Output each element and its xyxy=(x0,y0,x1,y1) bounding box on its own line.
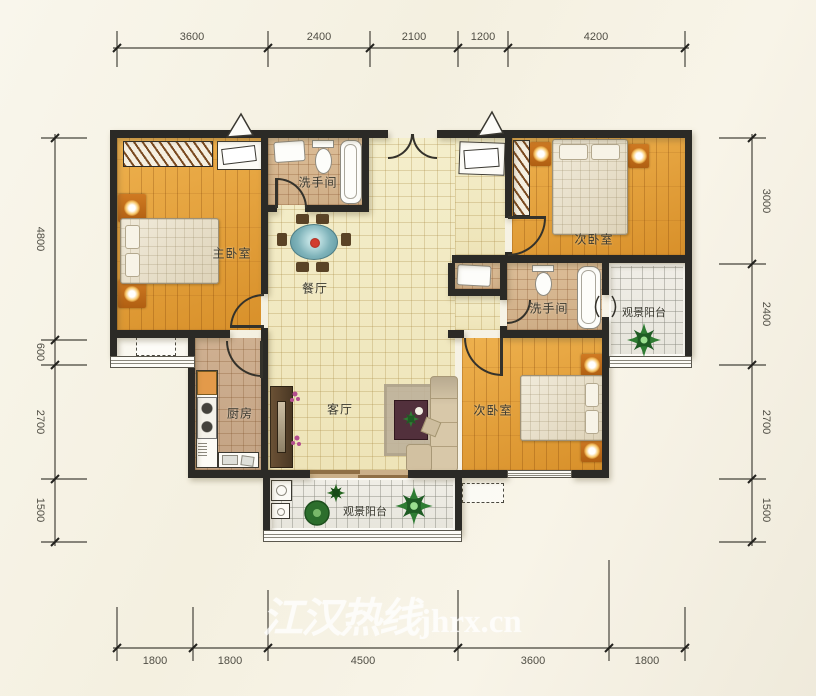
toilet-tank-icon xyxy=(532,265,554,272)
balcony-railing xyxy=(609,356,692,368)
dining-table xyxy=(290,224,338,260)
table-dish-icon xyxy=(415,407,423,415)
sink-icon xyxy=(273,140,305,163)
dim-top: 1200 xyxy=(471,31,495,43)
nightstand xyxy=(530,142,551,166)
toilet-bowl-icon xyxy=(535,272,552,296)
cabinet-top xyxy=(463,148,499,169)
bathtub-icon xyxy=(340,140,362,204)
dining-label: 餐厅 xyxy=(302,280,328,297)
watermark-en: jhrx.cn xyxy=(420,604,522,641)
kitchen-sink-basin xyxy=(222,455,238,465)
nightstand xyxy=(118,280,146,308)
shoe-cabinet xyxy=(458,141,505,176)
kitchen-vent xyxy=(198,442,207,456)
door-leaf xyxy=(260,341,263,378)
bathroom-right-label: 洗手间 xyxy=(529,300,568,317)
lamp-icon xyxy=(631,148,647,164)
master-bed xyxy=(120,218,219,284)
laundry-sink-icon xyxy=(271,503,290,519)
dim-top: 2100 xyxy=(402,31,426,43)
living-label: 客厅 xyxy=(327,401,353,418)
nightstand xyxy=(628,144,649,168)
bathtub-inner xyxy=(581,270,596,324)
dim-right: 2700 xyxy=(760,410,772,434)
dresser xyxy=(217,141,262,170)
dining-chair xyxy=(296,262,309,272)
dim-top: 4200 xyxy=(584,31,608,43)
ac-platform xyxy=(462,483,504,503)
kitchen-cabinet xyxy=(197,371,217,395)
door-leaf xyxy=(508,216,546,219)
bedroom-top-right-label: 次卧室 xyxy=(574,231,613,248)
dim-bottom: 4500 xyxy=(351,655,375,667)
dim-left: 1500 xyxy=(34,498,46,522)
dim-bottom: 1800 xyxy=(635,655,659,667)
balcony-railing xyxy=(263,530,462,542)
sliding-door-panel xyxy=(310,470,360,474)
dining-chair xyxy=(316,214,329,224)
sofa-chaise xyxy=(406,444,432,472)
dim-left: 600 xyxy=(34,343,46,361)
lamp-icon xyxy=(124,200,140,216)
wardrobe xyxy=(123,141,213,167)
bed xyxy=(552,139,628,235)
lamp-icon xyxy=(124,286,140,302)
table-flowers-icon xyxy=(310,238,320,248)
sliding-door-panel xyxy=(358,475,408,479)
pillow xyxy=(585,410,599,434)
watermark: 江汉热线 jhrx.cn xyxy=(262,584,522,644)
bedroom-bottom-right-label: 次卧室 xyxy=(473,402,512,419)
dining-chair xyxy=(341,233,351,246)
bathroom-top-label: 洗手间 xyxy=(298,174,337,191)
door-leaf xyxy=(230,325,264,328)
pillow xyxy=(585,383,599,407)
door-leaf xyxy=(275,178,278,208)
room-hall-pocket xyxy=(455,296,500,330)
master-bedroom-label: 主卧室 xyxy=(212,245,251,262)
dining-chair xyxy=(316,262,329,272)
kitchen-sink-basin xyxy=(240,455,254,467)
dim-top: 2400 xyxy=(307,31,331,43)
toilet-tank-icon xyxy=(312,140,334,148)
dim-bottom: 1800 xyxy=(218,655,242,667)
floor-plan-canvas: 主卧室 洗手间 餐厅 次卧室 洗手间 观景阳台 厨房 客厅 次卧室 观景阳台 3… xyxy=(0,0,816,696)
lamp-icon xyxy=(584,357,600,373)
dining-chair xyxy=(296,214,309,224)
lamp-icon xyxy=(533,146,549,162)
nightstand xyxy=(581,354,603,376)
washer-door xyxy=(276,485,287,496)
coffee-table xyxy=(394,400,428,440)
dim-bottom: 3600 xyxy=(521,655,545,667)
toilet-bowl-icon xyxy=(315,148,332,174)
watermark-cn: 江汉热线 xyxy=(262,584,418,644)
dim-top: 3600 xyxy=(180,31,204,43)
stove-icon xyxy=(197,397,217,439)
lamp-icon xyxy=(584,443,600,459)
dresser-top-icon xyxy=(221,145,257,165)
bed xyxy=(520,375,604,441)
kitchen-label: 厨房 xyxy=(227,405,253,422)
bathtub-inner xyxy=(344,144,357,199)
dim-bottom: 1800 xyxy=(143,655,167,667)
balcony-bottom-label: 观景阳台 xyxy=(343,503,387,519)
wardrobe xyxy=(513,140,530,216)
sink-drain xyxy=(277,508,285,516)
door-leaf xyxy=(500,338,503,376)
dining-chair xyxy=(277,233,287,246)
washing-machine-icon xyxy=(271,480,292,501)
bay-window xyxy=(110,356,195,368)
sink-icon xyxy=(456,264,491,287)
nightstand xyxy=(581,440,603,462)
dim-left: 4800 xyxy=(34,227,46,251)
bay-planter-box xyxy=(136,337,176,356)
bathtub-icon xyxy=(577,266,601,329)
pillow xyxy=(125,225,140,249)
dim-right: 3000 xyxy=(760,189,772,213)
dim-right: 2400 xyxy=(760,302,772,326)
dim-right: 1500 xyxy=(760,498,772,522)
pillow xyxy=(591,144,620,160)
tv-icon xyxy=(277,401,286,453)
pillow xyxy=(559,144,588,160)
balcony-right-label: 观景阳台 xyxy=(622,304,666,320)
tv-cabinet xyxy=(270,386,293,468)
window xyxy=(507,470,572,478)
dim-left: 2700 xyxy=(34,410,46,434)
pillow xyxy=(125,253,140,277)
